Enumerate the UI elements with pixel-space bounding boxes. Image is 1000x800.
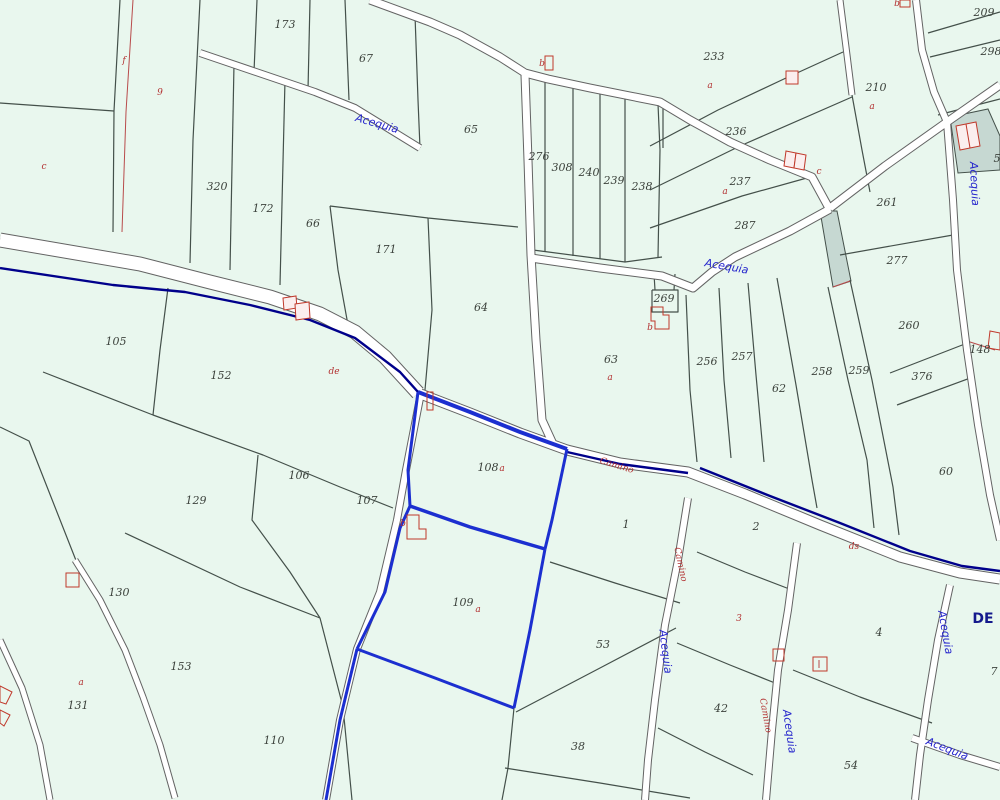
cadastral-map-viewport[interactable]: 1736765320172661716427630824023923823323… bbox=[0, 0, 1000, 800]
parcel-number-label: 4 bbox=[875, 626, 883, 639]
parcel-number-label: 62 bbox=[772, 382, 786, 395]
parcel-number-label: 5 bbox=[994, 152, 1000, 165]
parcel-number-label: 172 bbox=[253, 202, 274, 215]
subparcel-letter-label: b bbox=[400, 519, 406, 529]
subparcel-letter-label: de bbox=[328, 367, 339, 377]
parcel-number-label: 171 bbox=[376, 243, 397, 256]
subparcel-letter-label: c bbox=[816, 167, 821, 177]
parcel-number-label: 109 bbox=[453, 596, 474, 609]
parcel-number-label: 210 bbox=[865, 81, 887, 94]
building-icon bbox=[295, 302, 310, 320]
parcel-number-label: 110 bbox=[264, 734, 285, 747]
parcel-number-label: 269 bbox=[653, 292, 675, 305]
parcel-number-label: 66 bbox=[306, 217, 320, 230]
subparcel-letter-label: a bbox=[475, 605, 480, 615]
subparcel-letter-label: 3 bbox=[736, 614, 742, 624]
parcel-number-label: 238 bbox=[631, 180, 653, 193]
parcel-number-label: 259 bbox=[848, 364, 870, 377]
subparcel-letter-label: b bbox=[894, 0, 900, 9]
parcel-number-label: 130 bbox=[109, 586, 130, 599]
building-icon bbox=[794, 153, 806, 170]
map-background bbox=[0, 0, 1000, 800]
parcel-number-label: 108 bbox=[478, 461, 499, 474]
subparcel-letter-label: a bbox=[607, 373, 612, 383]
parcel-number-label: 376 bbox=[912, 370, 933, 383]
parcel-number-label: 173 bbox=[275, 18, 296, 31]
parcel-number-label: 38 bbox=[571, 740, 585, 753]
subparcel-letter-label: a bbox=[499, 464, 504, 474]
parcel-number-label: 209 bbox=[973, 6, 995, 19]
acequia-name-label: Acequia bbox=[967, 160, 982, 206]
parcel-number-label: 53 bbox=[596, 638, 610, 651]
parcel-number-label: 237 bbox=[729, 175, 751, 188]
subparcel-letter-label: a bbox=[78, 678, 83, 688]
subparcel-letter-label: ds bbox=[849, 542, 860, 552]
parcel-number-label: 148 bbox=[970, 343, 991, 356]
parcel-number-label: 131 bbox=[68, 699, 89, 712]
parcel-number-label: 2 bbox=[752, 520, 760, 533]
parcel-number-label: 60 bbox=[939, 465, 953, 478]
building-icon bbox=[786, 71, 798, 84]
subparcel-letter-label: b bbox=[539, 59, 545, 69]
parcel-number-label: 1 bbox=[623, 518, 630, 531]
parcel-number-label: 106 bbox=[289, 469, 310, 482]
parcel-number-label: 63 bbox=[604, 353, 618, 366]
parcel-number-label: 239 bbox=[603, 174, 625, 187]
parcel-number-label: 276 bbox=[528, 150, 550, 163]
parcel-number-label: 260 bbox=[898, 319, 920, 332]
parcel-number-label: 256 bbox=[696, 355, 718, 368]
parcel-number-label: 236 bbox=[725, 125, 747, 138]
subparcel-letter-label: c bbox=[41, 162, 46, 172]
map-canvas[interactable]: 1736765320172661716427630824023923823323… bbox=[0, 0, 1000, 800]
parcel-number-label: 258 bbox=[811, 365, 833, 378]
subparcel-letter-label: a bbox=[869, 102, 874, 112]
parcel-number-label: 42 bbox=[713, 702, 728, 715]
parcel-number-label: 105 bbox=[106, 335, 127, 348]
parcel-number-label: 233 bbox=[703, 50, 725, 63]
parcel-number-label: 320 bbox=[207, 180, 228, 193]
subparcel-letter-label: a bbox=[722, 187, 727, 197]
subparcel-letter-label: b bbox=[647, 323, 653, 333]
parcel-number-label: 64 bbox=[474, 301, 488, 314]
parcel-number-label: 54 bbox=[844, 759, 858, 772]
parcel-number-label: 277 bbox=[886, 254, 908, 267]
parcel-number-label: 153 bbox=[171, 660, 192, 673]
subparcel-letter-label: a bbox=[707, 81, 712, 91]
parcel-number-label: 298 bbox=[980, 45, 1000, 58]
parcel-number-label: 257 bbox=[731, 350, 753, 363]
parcel-number-label: 152 bbox=[211, 369, 232, 382]
parcel-number-label: 107 bbox=[357, 494, 378, 507]
parcel-number-label: 129 bbox=[186, 494, 207, 507]
parcel-number-label: 308 bbox=[552, 161, 573, 174]
parcel-number-label: 65 bbox=[464, 123, 478, 136]
parcel-number-label: 287 bbox=[734, 219, 756, 232]
parcel-number-label: 67 bbox=[359, 52, 373, 65]
parcel-number-label: 240 bbox=[578, 166, 600, 179]
district-name-label: DE bbox=[972, 611, 993, 627]
parcel-number-label: 7 bbox=[991, 665, 998, 678]
subparcel-letter-label: 9 bbox=[157, 88, 163, 98]
parcel-number-label: 261 bbox=[876, 196, 898, 209]
